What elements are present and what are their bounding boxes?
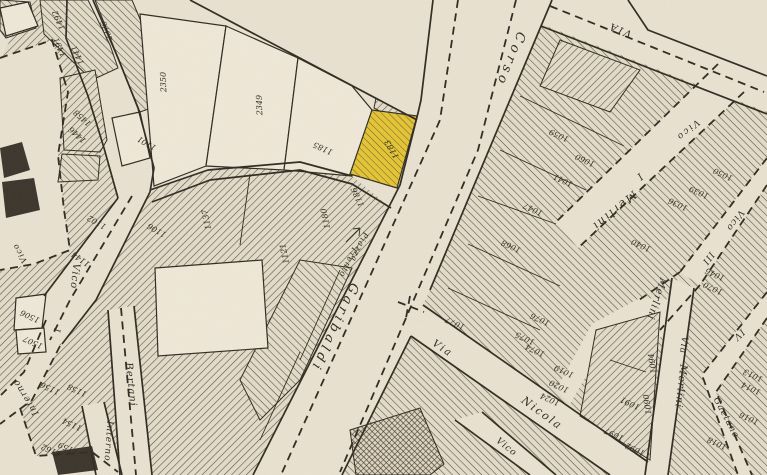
parcel-number: 2349 <box>255 95 265 117</box>
cadastral-map: 2350234923761492149114411458144611851183… <box>0 0 767 475</box>
building-block <box>58 154 100 182</box>
street-label: Via <box>677 336 689 355</box>
map-svg: 2350234923761492149114411458144611851183… <box>0 0 767 475</box>
parcel-number: 2350 <box>159 72 169 94</box>
parcel <box>155 260 268 356</box>
